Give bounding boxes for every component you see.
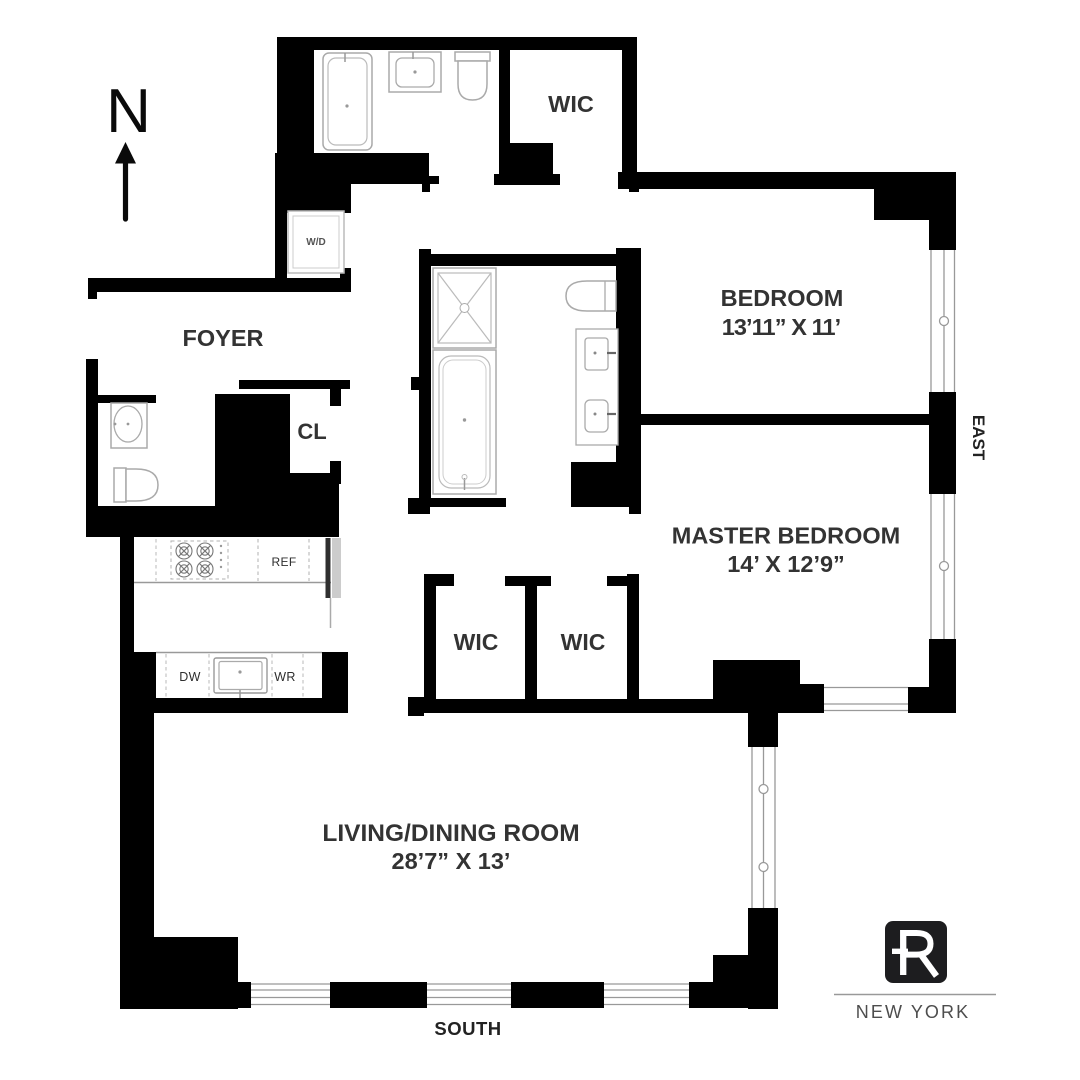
svg-text:WIC: WIC <box>561 629 606 655</box>
svg-text:REF: REF <box>272 555 297 569</box>
svg-text:WIC: WIC <box>548 91 594 117</box>
svg-text:W/D: W/D <box>306 237 325 248</box>
svg-text:WR: WR <box>274 670 295 684</box>
svg-text:FOYER: FOYER <box>183 325 264 351</box>
svg-text:CL: CL <box>297 419 326 444</box>
svg-text:EAST: EAST <box>969 415 988 461</box>
svg-text:SOUTH: SOUTH <box>434 1018 501 1039</box>
svg-text:MASTER BEDROOM: MASTER BEDROOM <box>672 523 900 549</box>
svg-text:WIC: WIC <box>454 629 499 655</box>
svg-text:28’7” X 13’: 28’7” X 13’ <box>392 848 511 874</box>
svg-text:DW: DW <box>179 670 200 684</box>
svg-text:13’11” X 11’: 13’11” X 11’ <box>722 314 841 340</box>
svg-text:LIVING/DINING ROOM: LIVING/DINING ROOM <box>322 820 579 847</box>
svg-text:NEW YORK: NEW YORK <box>856 1002 970 1022</box>
svg-text:14’ X 12’9”: 14’ X 12’9” <box>727 551 845 577</box>
svg-text:N: N <box>106 77 151 146</box>
svg-text:BEDROOM: BEDROOM <box>721 285 844 311</box>
